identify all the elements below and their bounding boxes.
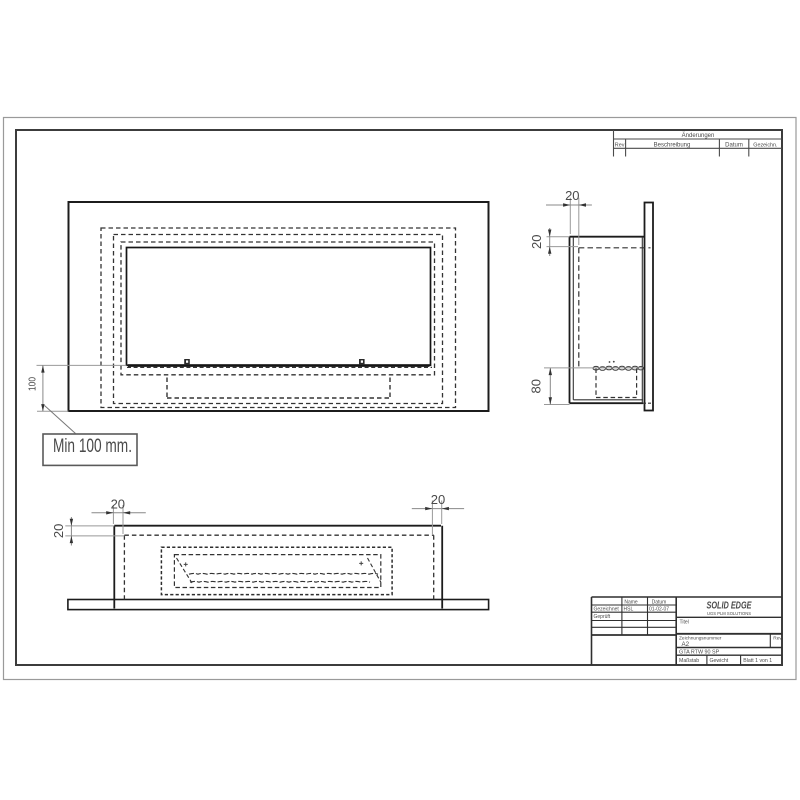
svg-text:01-02-07: 01-02-07 [649,607,669,613]
svg-text:Rev: Rev [773,635,782,641]
svg-text:Beschreibung: Beschreibung [654,143,691,149]
svg-text:100: 100 [27,377,39,391]
svg-text:Name: Name [624,599,638,605]
svg-text:Änderungen: Änderungen [682,132,715,139]
svg-text:Titel: Titel [680,620,689,626]
svg-text:Gezeichn.: Gezeichn. [753,143,777,149]
svg-text:Blatt 1 von 1: Blatt 1 von 1 [743,658,772,664]
svg-text:20: 20 [111,497,125,512]
svg-text:20: 20 [529,234,544,248]
svg-text:Gewicht: Gewicht [710,658,729,664]
svg-text:Geprüft: Geprüft [594,614,611,620]
svg-text:A2: A2 [682,641,690,648]
svg-text:20: 20 [431,492,445,507]
svg-text:Datum: Datum [652,599,667,605]
svg-text:Min 100 mm.: Min 100 mm. [53,436,132,457]
svg-text:HSL: HSL [624,607,634,613]
svg-text:SOLID EDGE: SOLID EDGE [707,600,753,612]
svg-text:20: 20 [565,188,579,203]
svg-text:Rev: Rev [615,143,625,149]
svg-text:UGS PLM SOLUTIONS: UGS PLM SOLUTIONS [707,611,751,616]
svg-text:80: 80 [528,379,543,393]
svg-text:Gezeichnet: Gezeichnet [594,607,620,613]
svg-text:Datum: Datum [725,143,743,149]
svg-text:Maßstab: Maßstab [679,658,699,664]
svg-text:20: 20 [51,524,66,538]
